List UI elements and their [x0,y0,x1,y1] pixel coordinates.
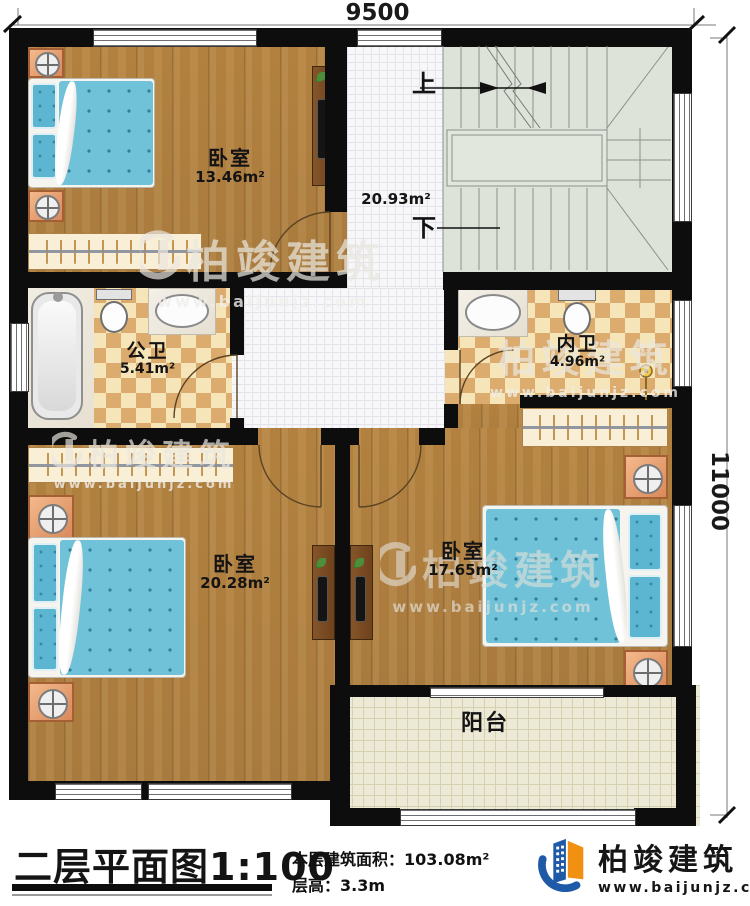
floor-area-label: 本层建筑面积： [292,850,404,869]
wall [330,808,400,826]
window [93,29,257,47]
plan-title-text: 二层平面图 [14,845,209,889]
floor-height-label: 层高： [292,876,340,895]
room-area: 5.41m² [90,362,205,378]
wall [325,46,347,212]
plan-title: 二层平面图1:100 [14,836,335,891]
company-logo-icon [534,834,592,896]
room-label-public-bath: 公卫 5.41m² [90,341,205,378]
title-underline-thin [12,894,272,896]
toilet [96,289,132,300]
tv [318,577,327,621]
room-name: 卧室 [170,553,300,575]
room-name: 阳台 [435,712,535,737]
wall [321,428,359,445]
wall [444,404,458,428]
sliding-door [430,687,604,698]
room-area: 17.65m² [398,562,528,579]
room-label-bedroom-top-left: 卧室 13.46m² [165,147,295,186]
stairwell-floor [443,46,672,272]
nightstand [624,455,668,499]
window [673,505,692,647]
nightstand [28,682,74,722]
bathtub [31,292,83,420]
toilet-bowl [563,302,591,335]
wardrobe [28,447,234,483]
wall [443,272,672,290]
room-area: 20.93m² [350,191,442,208]
wall [9,28,28,800]
room-label-bedroom-bottom-left: 卧室 20.28m² [170,553,300,592]
floor-plan: 柏竣建筑 www.baijunjz.com 柏竣建筑 www.baijunjz.… [0,0,750,906]
floor-area-line: 本层建筑面积：103.08m² [292,846,489,870]
pillow [628,513,662,571]
wall [230,288,244,355]
nightstand [28,190,64,222]
nightstand [28,48,64,78]
tv [356,577,365,621]
window [10,323,29,392]
floor-height-line: 层高：3.3m [292,872,385,896]
toilet-bowl [100,301,128,333]
wall [230,418,244,428]
pillow [31,83,57,129]
floor-height-value: 3.3m [340,876,385,895]
window [673,93,692,222]
nightstand [28,495,74,539]
stairs-down-label: 下 [412,208,436,243]
wall [444,288,458,350]
dimension-top: 9500 [330,0,425,26]
company-name: 柏竣建筑 [598,835,750,879]
balcony-railing [400,809,636,826]
room-name: 卧室 [398,540,528,562]
title-underline [12,884,272,891]
company-url: www.baijunjz.com [598,880,750,896]
room-area: 4.96m² [520,355,635,371]
room-area: 13.46m² [165,169,295,186]
balcony-floor [330,685,700,826]
room-label-hall: 20.93m² [350,191,442,208]
wall [520,395,672,408]
room-name: 卧室 [165,147,295,169]
room-name: 内卫 [520,334,635,355]
dimension-right: 11000 [706,451,732,511]
pillow [32,607,58,671]
pillow [32,543,58,603]
sink-basin [465,294,521,331]
wardrobe [28,233,202,270]
wall [28,272,347,288]
wall [634,808,696,826]
window [55,783,142,800]
wall [9,428,258,445]
floor-area-value: 103.08m² [404,850,489,869]
title-block: 二层平面图1:100 本层建筑面积：103.08m² 层高：3.3m [0,832,750,906]
room-label-balcony: 阳台 [435,712,535,737]
sink-basin [155,294,209,328]
wall [330,685,350,820]
company-logo: 柏竣建筑 www.baijunjz.com [534,834,750,896]
room-area: 20.28m² [170,575,300,592]
pillow [31,133,57,179]
pillow [628,575,662,639]
room-label-bedroom-bottom-right: 卧室 17.65m² [398,540,528,579]
window [148,783,292,800]
stairs-up-label: 上 [412,64,436,99]
wall [676,685,696,816]
room-label-private-bath: 内卫 4.96m² [520,334,635,371]
window [357,29,442,47]
wardrobe [522,408,668,447]
window [673,300,692,387]
wall [419,428,445,445]
toilet [558,289,596,301]
room-name: 公卫 [90,341,205,362]
hall-floor-wide [228,288,445,428]
